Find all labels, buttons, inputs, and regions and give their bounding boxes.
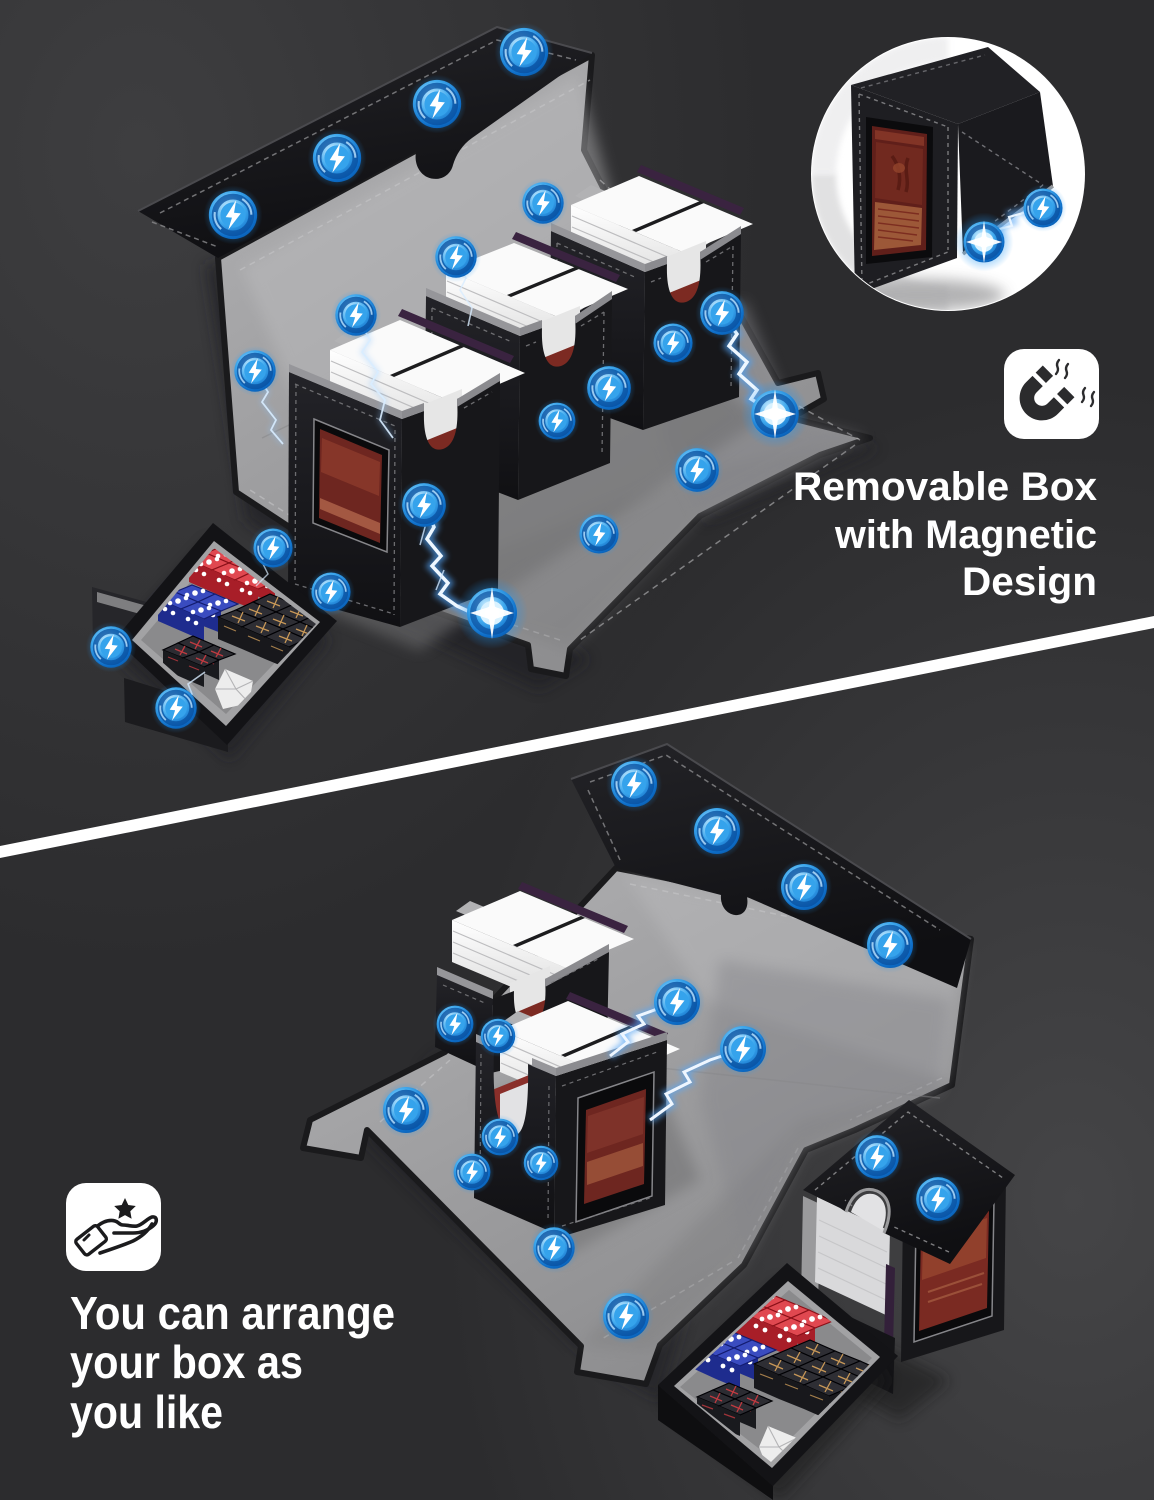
svg-text:Design: Design [962, 560, 1097, 604]
svg-text:You can arrange: You can arrange [70, 1287, 395, 1339]
svg-text:you like: you like [70, 1386, 223, 1438]
svg-text:your box as: your box as [70, 1336, 303, 1388]
svg-text:with Magnetic: with Magnetic [834, 513, 1097, 557]
svg-text:Removable Box: Removable Box [793, 465, 1097, 509]
